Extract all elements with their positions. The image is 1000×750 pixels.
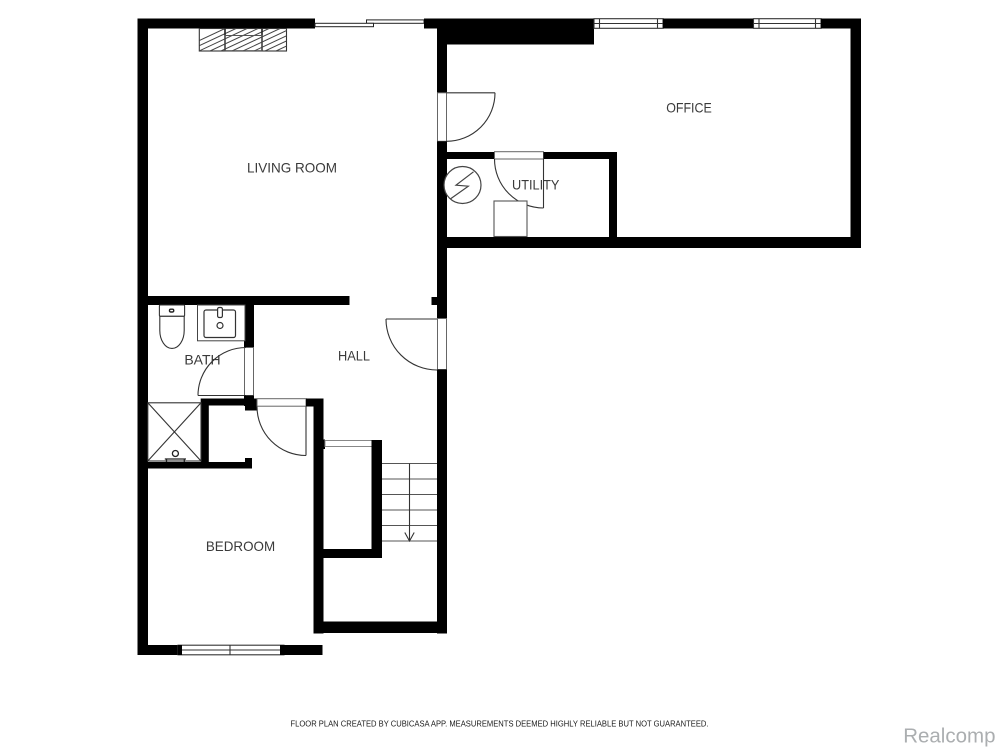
svg-text:Realcomp: Realcomp	[903, 725, 995, 748]
svg-text:BATH: BATH	[184, 352, 220, 368]
svg-text:OFFICE: OFFICE	[666, 100, 712, 116]
svg-text:LIVING ROOM: LIVING ROOM	[247, 160, 337, 176]
svg-text:UTILITY: UTILITY	[512, 177, 560, 193]
svg-text:HALL: HALL	[338, 348, 370, 364]
svg-text:BEDROOM: BEDROOM	[206, 538, 275, 554]
svg-text:FLOOR PLAN CREATED BY CUBICASA: FLOOR PLAN CREATED BY CUBICASA APP. MEAS…	[291, 720, 709, 729]
